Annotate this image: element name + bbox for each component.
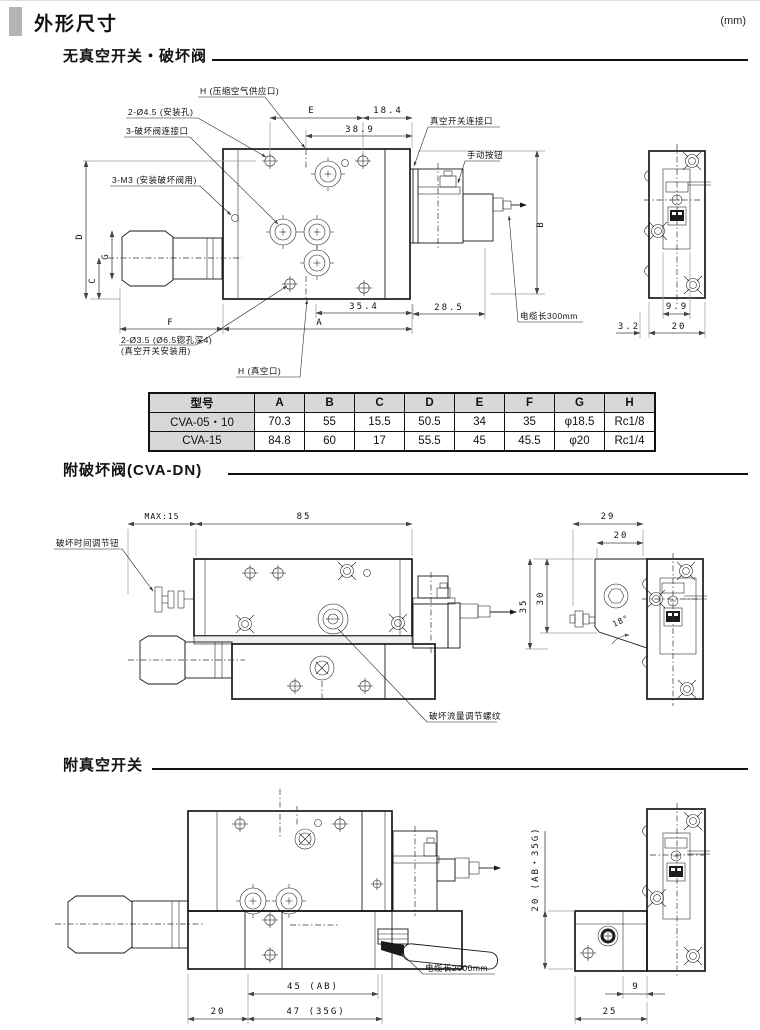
section-bullet: [9, 7, 22, 36]
unit-label: (mm): [720, 15, 746, 27]
bracket-plate: [418, 187, 460, 194]
front-view: [108, 149, 410, 299]
dim-20: 20: [211, 1007, 226, 1017]
dim-9: 9: [632, 982, 639, 992]
table-cell-model: CVA-05・10: [149, 413, 255, 432]
port-screw: [295, 829, 315, 849]
drawing-with-vacuum-switch: 45 (AB) 20 47 (35G) 20 (AB・35G) 9 25 电缆长…: [0, 781, 760, 1030]
callout-time-knob: 破坏时间调节钮: [56, 538, 119, 548]
table-cell: φ20: [555, 432, 605, 452]
table-cell: 35: [505, 413, 555, 432]
table-header-row: 型号 A B C D E F G H: [149, 393, 655, 413]
counterbore-hole: [356, 280, 372, 296]
dim-47-35g: 47 (35G): [286, 1007, 345, 1017]
vacuum-switch-unit: [393, 826, 501, 916]
dim-20-ab-35g: 20 (AB・35G): [531, 826, 541, 911]
drawing-no-switch-no-valve: E 18.4 38.9 D G C 35.4 F A B: [0, 86, 760, 386]
right-side-view: [575, 803, 710, 977]
dim-3-2: 3.2: [618, 322, 640, 332]
table-cell: 17: [355, 432, 405, 452]
screw: [649, 222, 667, 240]
callout-vacuum-switch-port: 真空开关连接口: [430, 116, 493, 126]
m3-hole: [232, 215, 239, 222]
section1-title: 无真空开关・破坏阀: [63, 45, 207, 66]
catalog-page: 外形尺寸 (mm) 无真空开关・破坏阀: [0, 0, 760, 1030]
needle-base: [493, 198, 503, 211]
callout-vacuum-port: H (真空口): [238, 366, 281, 376]
hose-fitting: [108, 231, 242, 286]
dim-28-5: 28.5: [434, 303, 464, 313]
valve-port: [300, 215, 334, 249]
dim-29: 29: [601, 512, 616, 522]
dim-B: B: [536, 220, 546, 227]
section3-rule: [152, 768, 748, 770]
table-cell: 34: [455, 413, 505, 432]
table-cell: 70.3: [255, 413, 305, 432]
dimensions: E 18.4 38.9 D G C 35.4 F A B: [75, 106, 705, 338]
table-header-cell: G: [555, 393, 605, 413]
dim-E: E: [308, 106, 315, 116]
table-cell: 45.5: [505, 432, 555, 452]
dimension-table: 型号 A B C D E F G H CVA-05・10 70.3 55 15.…: [148, 392, 656, 452]
section2-title: 附破坏阀(CVA-DN): [63, 459, 202, 480]
table-cell: Rc1/8: [605, 413, 656, 432]
dim-A: A: [316, 318, 323, 328]
table-header-cell: H: [605, 393, 656, 413]
table-cell: 60: [305, 432, 355, 452]
callout-flow-screw: 破坏流量调节螺纹: [429, 711, 501, 721]
table-cell: Rc1/4: [605, 432, 656, 452]
table-cell-model: CVA-15: [149, 432, 255, 452]
callout-cable-2000: 电缆长2000mm: [425, 963, 488, 973]
table-cell: 55: [305, 413, 355, 432]
manual-button: [440, 176, 456, 187]
dim-9-9: 9.9: [666, 302, 688, 312]
table-header-cell: 型号: [149, 393, 255, 413]
page-title: 外形尺寸: [34, 9, 118, 36]
table-header-cell: E: [455, 393, 505, 413]
bottom-ports: [287, 656, 373, 699]
callouts: 电缆长2000mm: [401, 953, 495, 974]
dim-35: 35: [519, 599, 529, 614]
flow-adjust-screw: [318, 604, 348, 634]
table-header-cell: A: [255, 393, 305, 413]
dim-20: 20: [672, 322, 687, 332]
valve-port: [300, 246, 334, 280]
counterbore-hole: [282, 276, 298, 292]
valve-port: [266, 215, 300, 249]
break-time-knob: [155, 587, 194, 612]
right-side-view: [644, 144, 711, 304]
callouts: 破坏时间调节钮 破坏流量调节螺纹: [54, 538, 501, 722]
dim-20: 20: [614, 531, 629, 541]
table-row: CVA-15 84.8 60 17 55.5 45 45.5 φ20 Rc1/4: [149, 432, 655, 452]
callout-counterbore-2: (真空开关安装用): [121, 346, 191, 356]
dim-C: C: [88, 276, 98, 283]
screw: [683, 152, 701, 170]
callout-cable-300: 电缆长300mm: [520, 311, 578, 321]
mount-hole: [262, 153, 278, 169]
right-side-view: 18°: [570, 553, 707, 706]
side-assembly: [413, 572, 517, 654]
table-header-cell: B: [305, 393, 355, 413]
section3-title: 附真空开关: [63, 754, 143, 775]
dim-18-4: 18.4: [373, 106, 403, 116]
dim-D: D: [75, 232, 85, 239]
front-view: [55, 789, 501, 970]
dim-F: F: [167, 318, 174, 328]
callout-air-supply: H (压缩空气供应口): [200, 86, 279, 96]
table-header-cell: F: [505, 393, 555, 413]
mount-hole: [355, 153, 371, 169]
socket-screw: [598, 926, 618, 946]
section1-rule: [212, 59, 748, 61]
front-view: [128, 559, 517, 699]
dim-85: 85: [297, 512, 312, 522]
table-header-cell: D: [405, 393, 455, 413]
table-cell: 15.5: [355, 413, 405, 432]
section2-rule: [228, 473, 748, 475]
table-cell: 45: [455, 432, 505, 452]
dim-35-4: 35.4: [349, 302, 379, 312]
dim-38-9: 38.9: [345, 125, 375, 135]
table-row: CVA-05・10 70.3 55 15.5 50.5 34 35 φ18.5 …: [149, 413, 655, 432]
callout-manual-button: 手动按钮: [467, 150, 503, 160]
table-cell: φ18.5: [555, 413, 605, 432]
dim-max15: MAX:15: [145, 512, 180, 521]
port: [311, 157, 345, 191]
callout-valve-ports: 3-破坏阀连接口: [126, 126, 189, 136]
callout-mount-holes: 2-Ø4.5 (安装孔): [128, 107, 194, 117]
dim-45-ab: 45 (AB): [287, 982, 339, 992]
table-cell: 55.5: [405, 432, 455, 452]
table-cell: 84.8: [255, 432, 305, 452]
side-assembly: [410, 163, 527, 249]
dim-30: 30: [536, 591, 546, 606]
table-cell: 50.5: [405, 413, 455, 432]
table-header-cell: C: [355, 393, 405, 413]
drawing-with-break-valve: 18° MAX:15 85 29 20 35: [0, 496, 760, 746]
dim-G: G: [101, 252, 111, 259]
dim-angle-18: 18°: [611, 613, 631, 629]
dim-25: 25: [603, 1007, 618, 1017]
screw: [684, 276, 702, 294]
callout-m3: 3-M3 (安装破坏阀用): [112, 175, 197, 185]
